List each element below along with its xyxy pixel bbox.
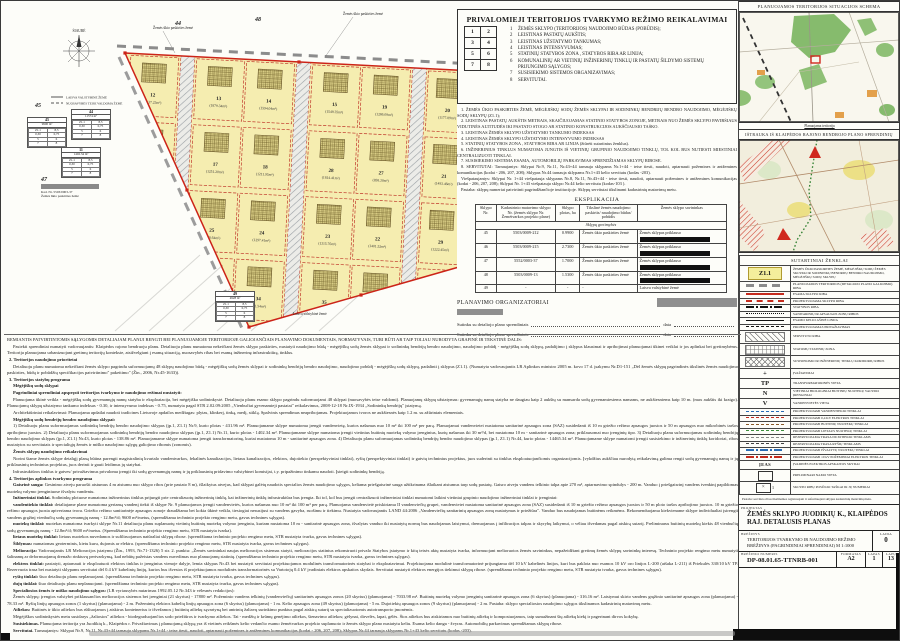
regime-mini-table: 459900 m²Z1.18,50,300,755678 — [27, 117, 67, 148]
consent-label: Sutinku su detaliojo plano sprendiniais — [457, 322, 528, 327]
paragraph: dujų tinklai: šiuo detaliuoju planu nepl… — [7, 581, 738, 587]
explication-header: Tikslinė žemės naudojimo paskirtis/ naud… — [580, 204, 637, 221]
legend-item: SUSISIEKIMO IR INŽINERINIŲ TINKLŲ KORIDO… — [740, 356, 900, 369]
neighbor-parcel-label: 47 Kad. Nr. 5503/0003-37 Žemės ūkio pask… — [41, 177, 113, 198]
svg-text:21: 21 — [441, 175, 447, 180]
paragraph: vandentiekio tinklai: detaliajame plane … — [7, 502, 738, 521]
paragraph: Šildymas: numatomas geoterminis, kietu k… — [7, 541, 738, 547]
regime-note-line: 2. LEISTINAS PASTATŲ AUKŠTIS METRAIS, SK… — [457, 118, 737, 129]
paragraph: Pagrindiniai sprendiniai apspręsti terit… — [7, 390, 738, 396]
extract-map-graphic — [739, 140, 899, 252]
boundary-point — [359, 293, 362, 296]
drawing-title: TERITORIJOS TVARKYMO IR NAUDOJIMO REŽIMO… — [739, 536, 872, 551]
paragraph: Planuojama ūkinė veikla - mėgėjiškų sodų… — [7, 397, 738, 410]
requirements-list: 1ŽEMĖS SKLYPO (TERITORIJOS) NAUDOJIMO BŪ… — [510, 27, 732, 84]
neighbor-number: 44 — [174, 21, 181, 27]
req-grid-cell: 7 — [465, 60, 481, 71]
date-label: data — [663, 322, 671, 327]
z11-zone-icon: Z1.1 — [748, 267, 782, 280]
legend-note: Pastaba: servituto ribos tikslinamos reg… — [739, 495, 900, 503]
requirements-title: PRIVALOMIEJI TERITORIJOS TVARKYMO REŽIMO… — [462, 15, 732, 24]
treated-water-network-icon — [746, 449, 784, 451]
neighbor-parcel-use: Žemės ūkio paskirties žemė — [41, 194, 113, 198]
regime-notes: 1. ŽEMĖS ŪKIO PASKIRTIES ŽEMĖ, MĖGĖJIŠKŲ… — [457, 107, 737, 193]
intro-line: REMIANTIS PATVIRTINTOMIS SĄLYGOMIS DETAL… — [7, 337, 738, 343]
paragraph: 1) Detaliuoju planu suformuojamas sodini… — [7, 423, 738, 448]
scan-artifact — [1, 633, 10, 640]
situation-map-title: PLANUOJAMOS TERITORIJOS SITUACIJOS SCHEM… — [739, 1, 900, 12]
legend-item: PRELIMINARI NAMO VIETA — [740, 469, 900, 482]
boundary-point — [123, 51, 126, 54]
paragraph: Inžineriniai tinklai. Sodininkų plotuose… — [7, 495, 738, 501]
servitude-area-icon — [745, 332, 785, 342]
drawing-number: DP-08.01.65-TTNRB-001 — [739, 556, 836, 567]
redacted-owner-bar — [640, 265, 710, 270]
svg-text:(1188.64m²): (1188.64m²) — [202, 235, 221, 240]
legend-item: SERVITUTO RIBA — [740, 331, 900, 344]
situation-map-graphic — [739, 12, 899, 122]
paragraph: Architektūriniai reikalavimai: Planuojam… — [7, 410, 738, 416]
svg-text:(1606.76m²): (1606.76m²) — [136, 232, 155, 237]
project-title: ŽEMĖS SKLYPO JUODIKIŲ K., KLAIPĖDOS RAJ.… — [739, 510, 899, 531]
lv-electric-network-icon — [746, 417, 784, 418]
legend-item: VVANDENVIETĖS VIETA — [740, 399, 900, 409]
entrance-icon: + — [763, 370, 767, 377]
water-network-icon — [746, 411, 784, 412]
sheet-value: 1 — [866, 556, 882, 563]
req-grid-cell: 3 — [465, 38, 481, 49]
requirement-item: 8SERVITUTAI. — [510, 78, 732, 84]
paragraph: ryšių tinklai: šiuo detaliuoju planu nep… — [7, 574, 738, 580]
boundary-point — [185, 188, 188, 191]
paragraph: Infrastruktūros tinklus ir gatves/ priva… — [7, 469, 738, 475]
planned-territory-boundary-icon — [746, 284, 784, 287]
redacted-owner-bar — [640, 237, 710, 242]
req-grid-cell: 5 — [465, 49, 481, 60]
paragraph: Gaisrinė sauga: Gesinimo atveju paruošti… — [7, 482, 738, 495]
table-row: 455503/0009-2120.9900Žemės ūkio paskirti… — [476, 230, 727, 244]
section-heading: 3. Teritorijos statybų programa — [7, 377, 738, 383]
situation-map — [739, 12, 900, 123]
svg-text:(1183.23m²): (1183.23m²) — [428, 313, 447, 318]
svg-text:13: 13 — [216, 97, 222, 102]
legend-table: SUTARTINIAI ŽENKLAI Z1.1ŽEMĖS ŪKIO PASKI… — [739, 255, 900, 495]
solutions-text: REMIANTIS PATVIRTINTOMIS SĄLYGOMIS DETAL… — [4, 334, 741, 633]
format-value: A2 — [837, 556, 865, 563]
paragraph: nuotekų tinklai: nuotekas numatoma tvark… — [7, 521, 738, 534]
paragraph: Pasiekti sprendiniai numatyti vadovaujan… — [7, 344, 738, 357]
regime-mini-table: 494928 m²Z1.18,50,300,755678 — [215, 291, 255, 322]
svg-text:19: 19 — [382, 106, 388, 111]
date-line — [674, 321, 734, 327]
boundary-point-icon: × — [756, 483, 771, 493]
house-location-icon — [758, 471, 773, 481]
plan-annotation: Žemės ūkio paskirties žemė — [343, 11, 383, 16]
legend-item: +ĮVAŽIAVIMAI — [740, 369, 900, 379]
plan-annotation: Žemės ūkio paskirties žemė — [153, 25, 193, 30]
explication-header: Kadastrinio matavimo sklypo Nr. (žemės s… — [496, 204, 555, 221]
table-row: 475552/0003-371.7000Žemės ūkio paskirtie… — [476, 257, 727, 271]
svg-text:NUOSAVYBĖS TEISE VALDOMA ŽEMĖ: NUOSAVYBĖS TEISE VALDOMA ŽEMĖ — [66, 101, 122, 106]
req-grid-cell: 1 — [465, 27, 481, 38]
explication-header: Sklypo Nr. — [476, 204, 497, 221]
right-column: PLANUOJAMOS TERITORIJOS SITUACIJOS SCHEM… — [738, 1, 900, 641]
explication-header: Sklypo plotas, ha — [556, 204, 580, 221]
req-grid-cell: 4 — [481, 38, 497, 49]
redacted-owner-bar — [41, 184, 99, 189]
projected-access-icon — [746, 326, 784, 327]
legend-item: NVIETINIAI BIOLOGINIAI BUITINIŲ NUOTEKŲ … — [740, 388, 900, 398]
construction-limit-icon — [746, 306, 784, 308]
paragraph: Mėgėjiškų sodų sklypai — [7, 383, 738, 389]
paragraph: elektros tinklai: pastatyti, aptarnauti … — [7, 561, 738, 574]
scan-artifact — [896, 553, 899, 641]
req-grid-cell: 2 — [481, 27, 497, 38]
svg-text:31: 31 — [206, 295, 212, 300]
laida-value: 0 — [873, 536, 899, 544]
regime-note-line: 8. SERVITUTAI: Tarnaujantys: Sklypai Nr.… — [457, 164, 737, 175]
paragraph: Detaliuoju planu numatoma nekeičiant žem… — [7, 364, 738, 377]
requirement-item: 6KOMUNALINIŲ AR VIETINIŲ INŽINERINIŲ TIN… — [510, 59, 732, 72]
paragraph: Atliekos: Buitinės ir ūkio atliekos bus … — [7, 607, 738, 613]
regime-mini-table: 111402.34 m²Z1.18,50,300,755678 — [61, 147, 101, 178]
redacted-owner-bar — [640, 251, 710, 256]
paragraph: Susisiekimas. Planuojama teritorija yra … — [7, 621, 738, 627]
svg-text:34: 34 — [256, 297, 262, 302]
building-zone-icon — [745, 345, 785, 355]
redacted-organizer-name — [657, 298, 737, 307]
req-grid-cell: 6 — [481, 49, 497, 60]
requirements-column: 12345678 PRIVALOMIEJI TERITORIJOS TVARKY… — [457, 9, 737, 335]
extract-map — [739, 140, 900, 253]
explication-group-label: Sklypų gretimybės — [476, 222, 727, 230]
redacted-owner-bar — [640, 278, 710, 283]
paragraph: Mėgėjiškos sodininkystės metu susidarys … — [7, 614, 738, 620]
electric-meter-board-icon: ĮEAS — [759, 462, 771, 467]
scan-artifact — [733, 629, 899, 640]
table-row: 485503/0009-131.5300Žemės ūkio paskirtie… — [476, 271, 727, 285]
svg-text:40: 40 — [371, 303, 377, 308]
network-corridor-icon — [745, 357, 785, 367]
neighbor-number: 45 — [34, 103, 41, 109]
legend-item: × 1SKLYPO RIBŲ POSŪKIO TAŠKAI IR JŲ NUME… — [740, 482, 900, 495]
regime-note-line: 1. ŽEMĖS ŪKIO PASKIRTIES ŽEMĖ, MĖGĖJIŠKŲ… — [457, 107, 737, 118]
svg-text:28: 28 — [328, 169, 334, 174]
regime-mini-table: 4411574 m²Z1.18,50,300,755678 — [71, 109, 111, 140]
svg-text:ŠIAURĖ: ŠIAURĖ — [73, 28, 87, 33]
gas-route-icon — [746, 437, 784, 438]
requirements-grid: 12345678 — [464, 26, 497, 71]
requirements-box: 12345678 PRIVALOMIEJI TERITORIJOS TVARKY… — [457, 9, 737, 104]
legend-title: SUTARTINIAI ŽENKLAI — [740, 256, 900, 266]
svg-text:(1587.38m²): (1587.38m²) — [140, 166, 159, 171]
paragraph: Norint šiame žemės sklype detalųjį planą… — [7, 456, 738, 469]
svg-text:14: 14 — [266, 99, 272, 104]
paragraph: Mėgėjiškų sodų bendrijų bendro naudojimo… — [7, 417, 738, 423]
organizers-heading: PLANAVIMO ORGANIZATORIAI — [457, 300, 549, 306]
req-grid-cell: 8 — [481, 60, 497, 71]
paragraph: Žemės sklypų naudojimo reikalavimai — [7, 449, 738, 455]
svg-text:20: 20 — [445, 109, 451, 114]
paragraph: lietaus nuotekų tinklai: lietaus nuoteko… — [7, 534, 738, 540]
paragraph: Specialiosios žemės ir miško naudojimo s… — [7, 588, 738, 594]
svg-text:17: 17 — [213, 163, 219, 168]
explication-table: Sklypo Nr.Kadastrinio matavimo sklypo Nr… — [475, 204, 727, 293]
svg-text:25: 25 — [209, 229, 215, 234]
boundary-point — [247, 325, 250, 328]
site-plan: 12(2137.23m²)13(1879.34m²)14(1594.04m²)1… — [25, 5, 457, 333]
regime-note-line: 6. INŽINERINIUS TINKLUS NUMATOMA JUNGTIS… — [457, 147, 737, 158]
svg-text:26: 26 — [143, 225, 149, 230]
storm-network-icon — [746, 430, 784, 431]
water-intake-icon: V — [763, 400, 768, 407]
paragraph: Melioracija: Vadovaujantis LR Melioracij… — [7, 548, 738, 561]
svg-text:33: 33 — [434, 307, 440, 312]
organizers-block: PLANAVIMO ORGANIZATORIAI Sutinku su deta… — [457, 298, 737, 337]
svg-text:12: 12 — [150, 93, 156, 98]
legend-item: ĮEASĮVADINĖS ELEKTROS APSKAITOS SKYDAI — [740, 461, 900, 470]
legend-item: STATOMŲ STATINIŲ ZONA — [740, 343, 900, 356]
existing-plot-boundary-icon — [746, 293, 784, 295]
svg-text:(938.34m²): (938.34m²) — [366, 310, 383, 315]
regime-note-line: Viešpataujantys: Sklypai Nr. 1+44 viešpa… — [457, 176, 737, 187]
scan-shadow — [89, 631, 735, 636]
road-axis-icon — [746, 320, 784, 321]
svg-text:24: 24 — [259, 231, 265, 236]
transformer-icon: TP — [761, 380, 769, 387]
section-heading: 2. Teritorijos naudojimo prioritetai — [7, 357, 738, 363]
svg-text:29: 29 — [438, 241, 444, 246]
redacted-organizer-name — [457, 309, 503, 315]
svg-text:23: 23 — [325, 235, 331, 240]
sewer-network-icon — [746, 424, 784, 425]
explication-title: EKSPLIKACIJA — [457, 197, 737, 203]
svg-text:18: 18 — [263, 165, 269, 170]
svg-text:22: 22 — [375, 237, 381, 242]
explication-header: Žemės sklypo savininkas — [637, 204, 726, 221]
signature-line — [531, 321, 660, 327]
plot: 26(1606.76m²) — [121, 187, 172, 249]
mv-electric-network-icon — [746, 456, 784, 458]
svg-text:LAISVA VALSTYBINĖ ŽEMĖ: LAISVA VALSTYBINĖ ŽEMĖ — [66, 95, 107, 100]
sanitary-zone-boundary-icon — [746, 313, 784, 314]
neighbor-parcel-number: 47 — [41, 177, 47, 183]
consent-line: Sutinku su detaliojo plano sprendiniais … — [457, 321, 737, 327]
svg-text:15: 15 — [332, 103, 338, 108]
north-arrow-icon: ŠIAURĖ — [63, 28, 95, 67]
table-row: 465503/0009-2152.7300Žemės ūkio paskirti… — [476, 243, 727, 257]
svg-text:16: 16 — [147, 159, 153, 164]
telecom-route-icon — [746, 443, 784, 444]
sewage-treatment-icon: N — [763, 390, 768, 397]
svg-text:30: 30 — [140, 291, 146, 296]
svg-text:27: 27 — [378, 171, 384, 176]
neighbor-number: 48 — [254, 17, 261, 23]
plan-sheet: 12(2137.23m²)13(1879.34m²)14(1594.04m²)1… — [0, 0, 900, 641]
legend-item: Z1.1ŽEMĖS ŪKIO PASKIRTIES ŽEMĖ, MĖGĖJIŠK… — [740, 266, 900, 282]
table-row: 49---Laisva valstybinė žemė — [476, 285, 727, 293]
extract-map-title: IŠTRAUKA IŠ KLAIPĖDOS RAJONO BENDROJO PL… — [739, 129, 900, 140]
regime-note-line: Pastaba: sklypų numeriai patvirtinti pag… — [457, 187, 737, 193]
boundary-point — [297, 60, 300, 63]
section-heading: 4. Teritorijos aplinkos tvarkymo program… — [7, 476, 738, 482]
title-block: PROJEKTAS ŽEMĖS SKLYPO JUODIKIŲ K., KLAI… — [739, 504, 900, 568]
plan-annotation: Laisva valstybinė žemė — [293, 312, 327, 316]
projected-plot-boundary-icon — [746, 300, 784, 302]
paragraph: Žemės sklypų: įrengtos valstybei priklau… — [7, 594, 738, 607]
legend-item: PLANUOJAMOS TERITORIJOS (DETALIOJO PLANO… — [740, 281, 900, 291]
legend-item: TPTRANSFORMATORINĖS VIETA — [740, 379, 900, 389]
